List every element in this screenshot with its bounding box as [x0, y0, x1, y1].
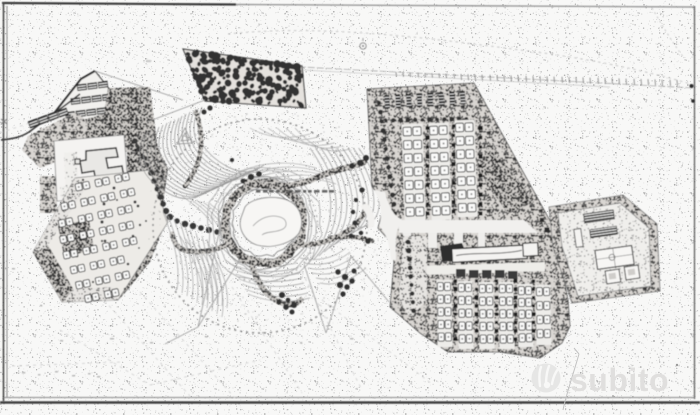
svg-text:subito: subito — [570, 362, 669, 398]
